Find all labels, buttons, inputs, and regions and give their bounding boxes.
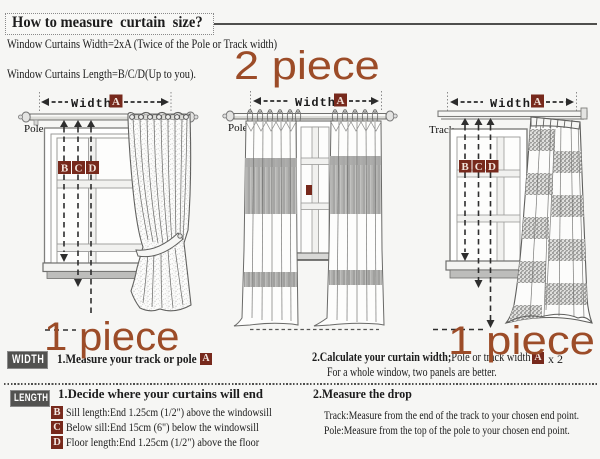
svg-text:D: D (89, 163, 97, 175)
svg-text:A: A (534, 96, 542, 108)
svg-text:Width: Width (295, 96, 336, 110)
svg-text:A: A (337, 95, 345, 107)
svg-text:D: D (488, 161, 496, 173)
svg-text:Pole: Pole (24, 123, 44, 135)
svg-text:B: B (61, 163, 69, 175)
svg-text:Width: Width (71, 97, 112, 111)
svg-text:Width: Width (490, 97, 531, 111)
svg-text:B: B (461, 161, 469, 173)
svg-text:C: C (475, 161, 483, 173)
svg-text:A: A (112, 96, 120, 108)
svg-text:C: C (75, 163, 83, 175)
svg-text:Pole: Pole (228, 122, 248, 134)
